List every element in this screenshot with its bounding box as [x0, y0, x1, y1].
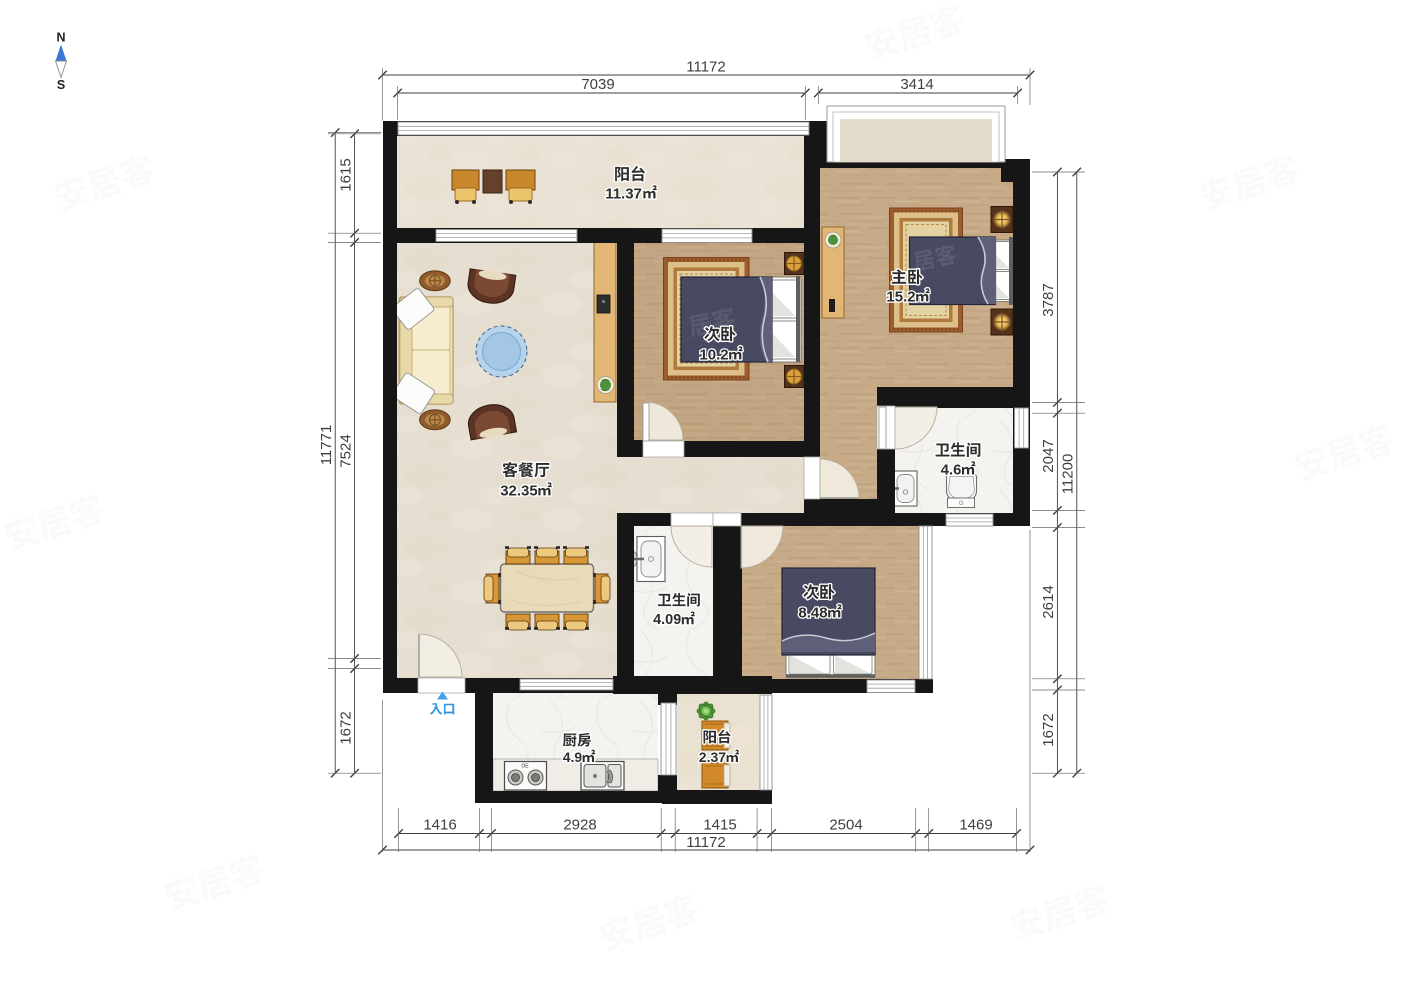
svg-text:8.48: 8.48	[798, 604, 827, 621]
svg-text:1615: 1615	[338, 158, 355, 191]
svg-text:3787: 3787	[1040, 283, 1057, 316]
svg-text:32.35: 32.35	[500, 482, 538, 499]
svg-text:7524: 7524	[338, 434, 355, 467]
svg-text:1672: 1672	[1040, 713, 1057, 746]
svg-text:N: N	[56, 31, 65, 45]
svg-text:3414: 3414	[900, 76, 933, 93]
svg-text:15.2: 15.2	[886, 288, 915, 305]
svg-text:10.2: 10.2	[699, 346, 728, 363]
svg-text:1416: 1416	[423, 817, 456, 834]
svg-text:2928: 2928	[563, 817, 596, 834]
svg-text:4.09: 4.09	[653, 612, 681, 628]
svg-text:2614: 2614	[1040, 585, 1057, 618]
svg-text:4.6: 4.6	[941, 461, 962, 478]
svg-text:2.37: 2.37	[699, 749, 726, 765]
svg-text:4.9: 4.9	[563, 749, 583, 765]
svg-text:1469: 1469	[959, 817, 992, 834]
svg-text:1415: 1415	[703, 817, 736, 834]
svg-text:1672: 1672	[338, 711, 355, 744]
svg-text:11172: 11172	[686, 59, 726, 76]
svg-text:11172: 11172	[686, 834, 726, 851]
svg-text:OE: OE	[521, 764, 529, 770]
svg-text:7039: 7039	[581, 76, 614, 93]
svg-text:2047: 2047	[1040, 439, 1057, 472]
svg-text:11771: 11771	[318, 425, 335, 466]
svg-text:S: S	[57, 78, 65, 92]
svg-text:2504: 2504	[829, 817, 862, 834]
svg-text:11200: 11200	[1060, 454, 1077, 495]
svg-text:11.37: 11.37	[605, 185, 642, 202]
